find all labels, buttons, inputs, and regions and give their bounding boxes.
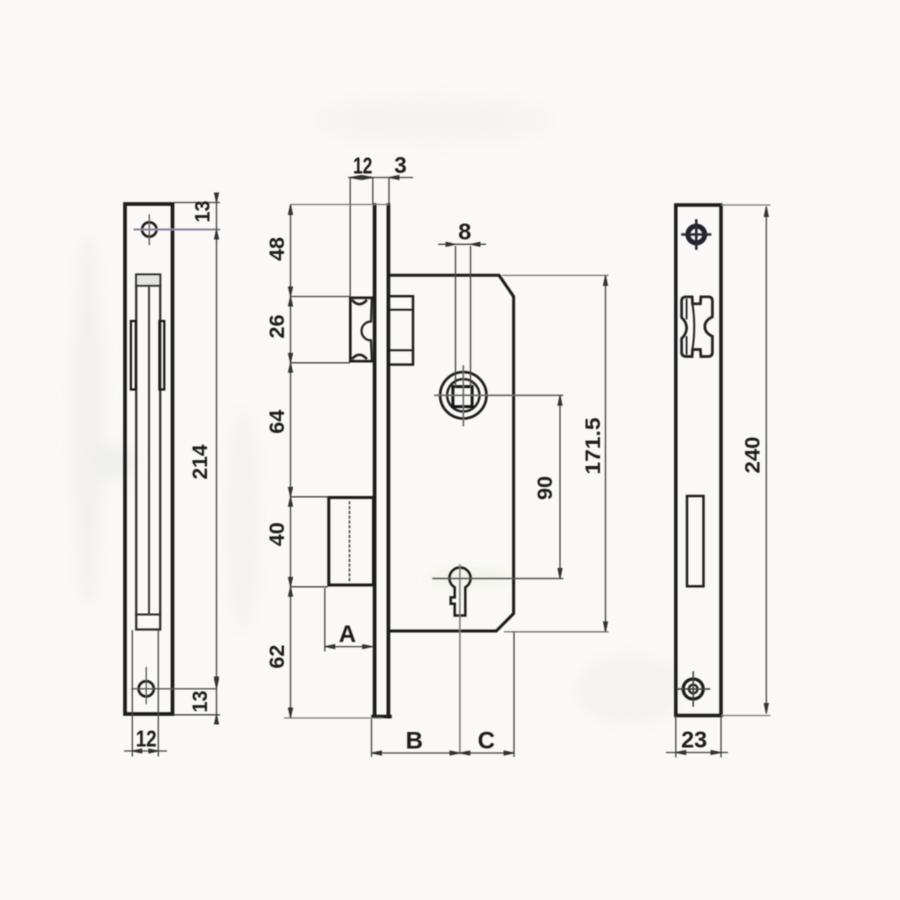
svg-text:40: 40 — [265, 522, 289, 546]
svg-text:64: 64 — [265, 410, 289, 434]
svg-text:13: 13 — [188, 690, 212, 712]
svg-text:C: C — [478, 728, 495, 755]
svg-text:26: 26 — [265, 314, 289, 338]
svg-text:A: A — [339, 621, 356, 648]
svg-text:171.5: 171.5 — [581, 417, 605, 474]
svg-text:13: 13 — [191, 200, 215, 222]
svg-text:214: 214 — [188, 444, 212, 479]
svg-text:62: 62 — [265, 645, 289, 669]
svg-text:12: 12 — [353, 153, 373, 179]
svg-text:B: B — [406, 728, 423, 755]
svg-text:8: 8 — [458, 219, 471, 245]
svg-text:240: 240 — [741, 436, 765, 473]
svg-text:23: 23 — [681, 727, 707, 753]
svg-text:90: 90 — [533, 476, 557, 500]
svg-text:3: 3 — [394, 152, 407, 178]
svg-text:12: 12 — [136, 726, 157, 752]
svg-text:48: 48 — [265, 237, 289, 261]
